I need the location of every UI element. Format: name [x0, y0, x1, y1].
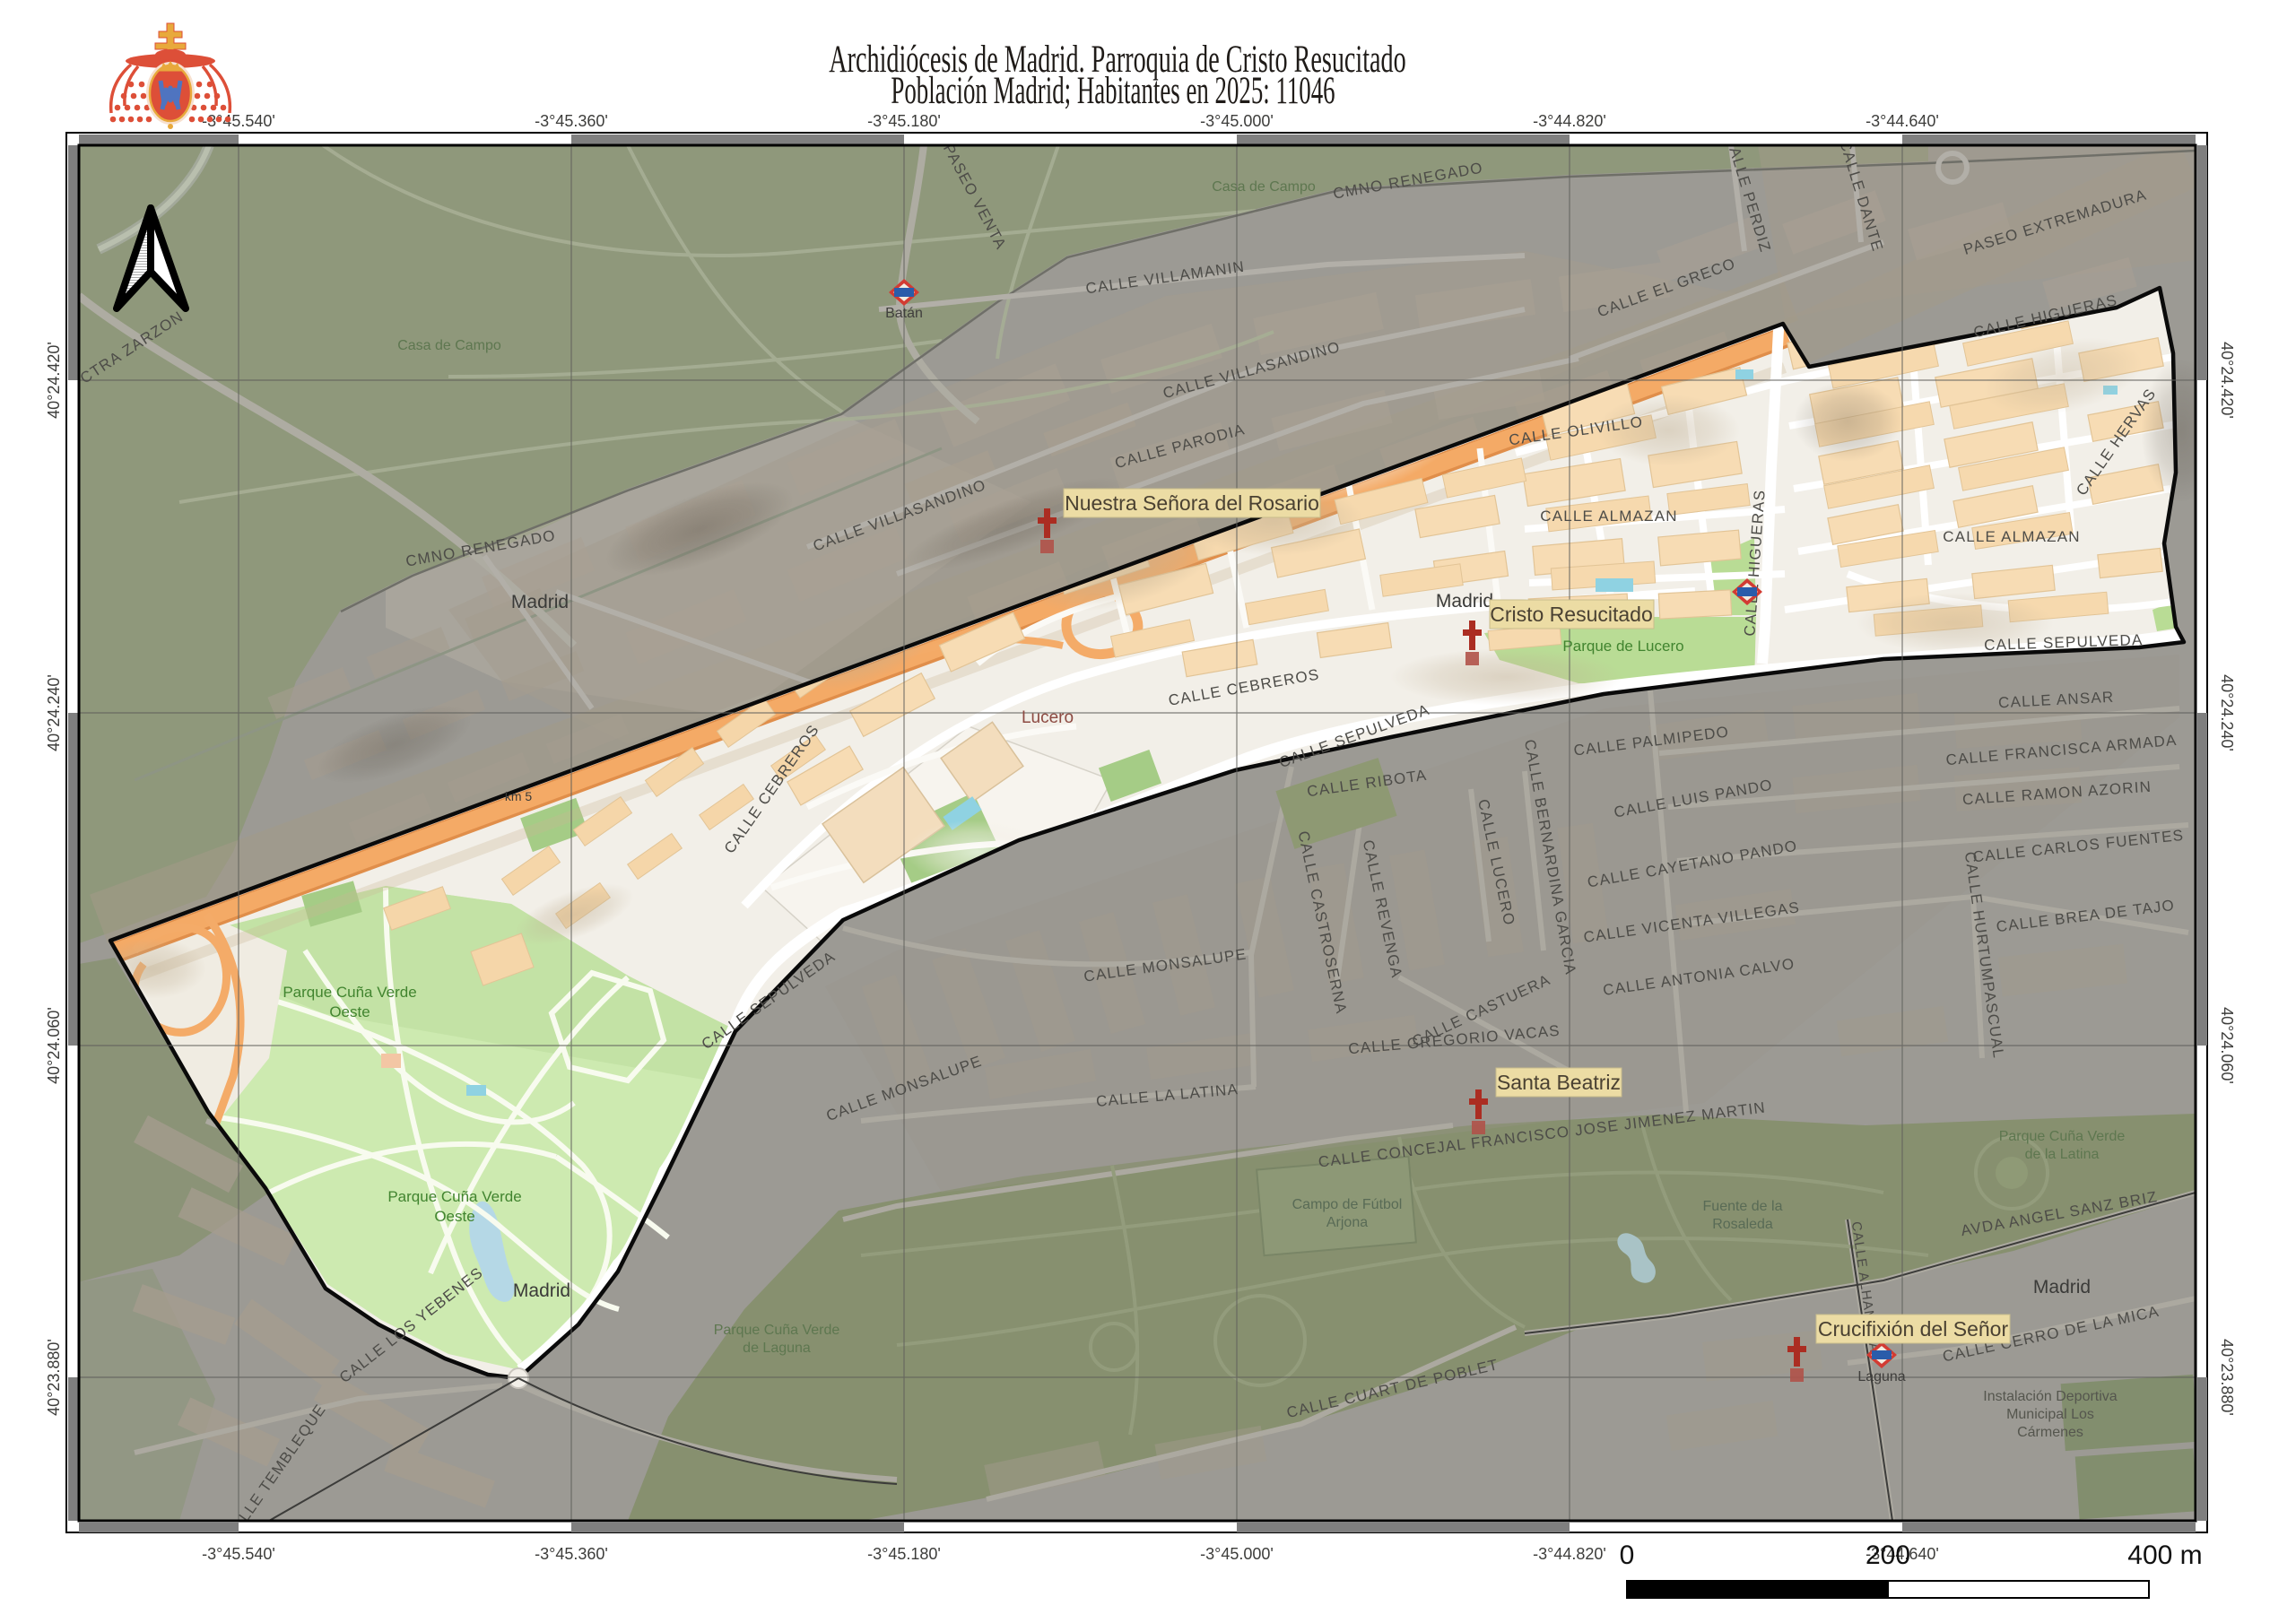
svg-text:Población Madrid; Habitantes e: Población Madrid; Habitantes en 2025: 11… [891, 69, 1335, 112]
svg-text:Oeste: Oeste [434, 1208, 474, 1225]
svg-text:Madrid: Madrid [511, 592, 569, 612]
svg-text:Cristo Resucitado: Cristo Resucitado [1490, 603, 1653, 626]
svg-text:Casa de Campo: Casa de Campo [1212, 179, 1316, 195]
svg-text:-3°45.000': -3°45.000' [1200, 1545, 1274, 1563]
svg-text:40°24.420': 40°24.420' [45, 342, 63, 419]
svg-text:40°24.240': 40°24.240' [2218, 674, 2236, 751]
svg-text:km 5: km 5 [505, 789, 533, 803]
svg-text:Parque Cuña Verde: Parque Cuña Verde [387, 1188, 521, 1205]
svg-text:40°24.420': 40°24.420' [2218, 342, 2236, 419]
svg-text:-3°45.540': -3°45.540' [202, 1545, 275, 1563]
svg-text:Fuente de la: Fuente de la [1703, 1199, 1783, 1214]
svg-text:Parque Cuña Verde: Parque Cuña Verde [283, 984, 416, 1001]
svg-text:CALLE ALMAZAN: CALLE ALMAZAN [1943, 528, 2081, 545]
svg-text:Instalación Deportiva: Instalación Deportiva [1983, 1389, 2118, 1404]
svg-text:Arjona: Arjona [1326, 1215, 1368, 1230]
svg-text:Batán: Batán [885, 306, 923, 321]
svg-text:-3°45.540': -3°45.540' [202, 112, 275, 130]
svg-text:-3°45.000': -3°45.000' [1200, 112, 1274, 130]
svg-text:-3°44.820': -3°44.820' [1533, 1545, 1606, 1563]
svg-text:40°24.060': 40°24.060' [2218, 1007, 2236, 1084]
svg-text:Parque Cuña Verde: Parque Cuña Verde [1999, 1129, 2126, 1144]
svg-text:400 m: 400 m [2127, 1541, 2202, 1570]
svg-text:40°24.240': 40°24.240' [45, 674, 63, 751]
svg-text:-3°44.820': -3°44.820' [1533, 112, 1606, 130]
svg-text:de Laguna: de Laguna [743, 1341, 811, 1356]
svg-text:Crucifixión del Señor: Crucifixión del Señor [1818, 1317, 2009, 1341]
svg-text:-3°44.640': -3°44.640' [1865, 112, 1939, 130]
svg-text:-3°45.180': -3°45.180' [867, 1545, 941, 1563]
svg-text:Laguna: Laguna [1857, 1369, 1905, 1384]
svg-text:de la Latina: de la Latina [2025, 1147, 2100, 1162]
svg-text:Rosaleda: Rosaleda [1712, 1217, 1773, 1232]
svg-text:Madrid: Madrid [1436, 591, 1493, 612]
svg-text:Cármenes: Cármenes [2017, 1425, 2083, 1440]
svg-text:Lucero: Lucero [1022, 708, 1074, 727]
svg-text:Santa Beatriz: Santa Beatriz [1497, 1071, 1621, 1094]
svg-text:Casa de Campo: Casa de Campo [397, 338, 501, 353]
svg-text:Oeste: Oeste [329, 1003, 370, 1020]
svg-text:-3°45.360': -3°45.360' [535, 112, 608, 130]
svg-text:Parque de Lucero: Parque de Lucero [1562, 638, 1683, 655]
svg-text:Madrid: Madrid [513, 1280, 570, 1301]
svg-text:0: 0 [1620, 1541, 1635, 1570]
svg-text:Municipal Los: Municipal Los [2006, 1407, 2094, 1422]
svg-text:CALLE ALMAZAN: CALLE ALMAZAN [1540, 508, 1678, 525]
svg-text:-3°45.360': -3°45.360' [535, 1545, 608, 1563]
svg-text:Campo de Fútbol: Campo de Fútbol [1292, 1197, 1403, 1212]
svg-text:40°24.060': 40°24.060' [45, 1007, 63, 1084]
svg-text:40°23.880': 40°23.880' [2218, 1339, 2236, 1416]
svg-text:Nuestra Señora del Rosario: Nuestra Señora del Rosario [1065, 491, 1319, 515]
svg-text:Parque Cuña Verde: Parque Cuña Verde [714, 1323, 840, 1338]
svg-text:200: 200 [1865, 1541, 1910, 1570]
svg-text:Madrid: Madrid [2033, 1277, 2091, 1298]
svg-text:-3°45.180': -3°45.180' [867, 112, 941, 130]
svg-text:40°23.880': 40°23.880' [45, 1339, 63, 1416]
